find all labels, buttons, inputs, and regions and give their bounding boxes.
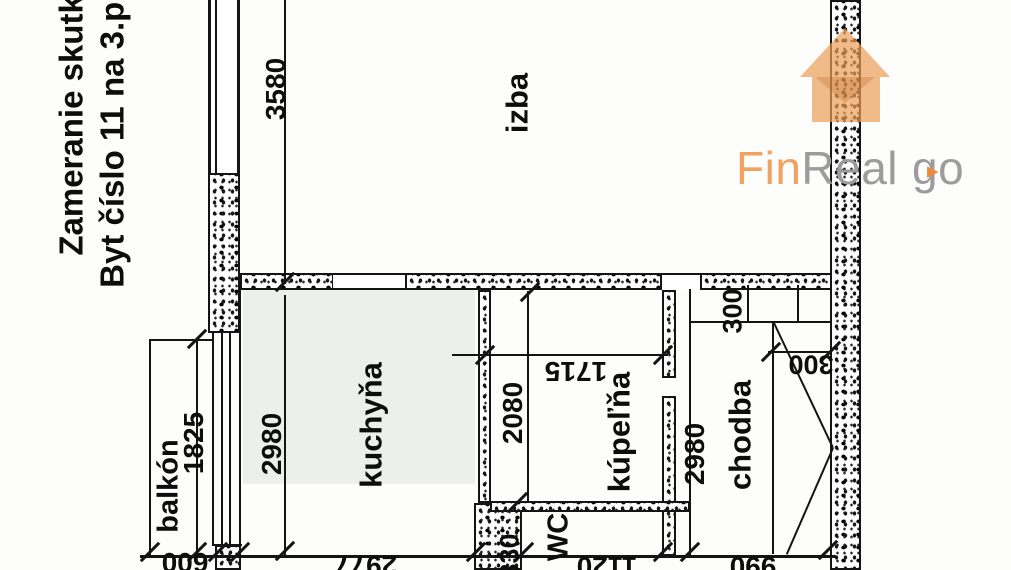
dim-label-330: 330 xyxy=(497,533,524,570)
dim-label-1715: 1715 xyxy=(545,357,607,385)
entry-partition-line xyxy=(772,322,774,554)
scan-title-line2: Byt číslo 11 na 3.p. vchod xyxy=(96,0,129,288)
logo-fin: Fin xyxy=(736,142,801,194)
balcony-top-edge xyxy=(149,339,213,341)
floorplan-scan: Zameranie skutkové Byt číslo 11 na 3.p. … xyxy=(0,0,1011,570)
logo-house-roof-icon xyxy=(800,28,890,77)
kitchen-left-edge xyxy=(239,289,241,556)
dim-label-600: 600 xyxy=(162,548,209,570)
room-label-wc: WC xyxy=(545,513,574,561)
room-label-izba: izba xyxy=(502,73,533,133)
dim-label-2080: 2080 xyxy=(499,382,527,444)
dim-label-3580: 3580 xyxy=(262,58,290,120)
window-left xyxy=(208,0,240,173)
dim-label-300-vert: 300 xyxy=(720,288,747,333)
door-opening-chodba xyxy=(662,273,700,290)
logo-real: Real xyxy=(801,142,898,194)
dim-label-2980-kitchen: 2980 xyxy=(258,413,286,475)
room-label-chodba: chodba xyxy=(725,380,756,490)
logo-play-icon: ▶ xyxy=(927,162,939,180)
balcony-door-line-1 xyxy=(212,333,214,545)
door-opening-kitchen xyxy=(333,273,405,290)
window-left-mullion xyxy=(215,0,217,173)
wall-wc-top xyxy=(490,501,690,512)
room-label-kuchyna: kuchyňa xyxy=(356,362,387,488)
dim-label-1825: 1825 xyxy=(180,412,208,474)
door-swing-2 xyxy=(786,448,834,555)
wall-bath-right-lower xyxy=(662,396,676,556)
dim-label-1120: 1120 xyxy=(577,552,638,570)
dim-label-2980-chodba: 2980 xyxy=(681,423,709,485)
dim-label-990: 990 xyxy=(730,552,777,570)
balcony-door-line-2 xyxy=(221,333,223,545)
balcony-door-line-3 xyxy=(229,333,231,545)
dim-line-3580 xyxy=(284,0,286,284)
wardrobe-bottom xyxy=(689,321,831,323)
wall-left-block xyxy=(208,173,240,333)
wall-top-c xyxy=(700,273,832,290)
balcony-left-edge xyxy=(149,340,151,555)
wardrobe-divider-2 xyxy=(797,285,799,322)
wall-bath-right-upper xyxy=(662,290,676,378)
wall-bath-left xyxy=(478,290,491,503)
room-label-kupelna: kúpeľňa xyxy=(604,372,635,492)
door-swing-1 xyxy=(773,323,834,449)
logo-house-shadow-icon xyxy=(815,77,875,103)
dim-label-300-flip: 300 xyxy=(788,351,833,378)
scan-title-line1: Zameranie skutkové xyxy=(55,0,88,256)
dim-label-2977: 2977 xyxy=(335,551,397,570)
